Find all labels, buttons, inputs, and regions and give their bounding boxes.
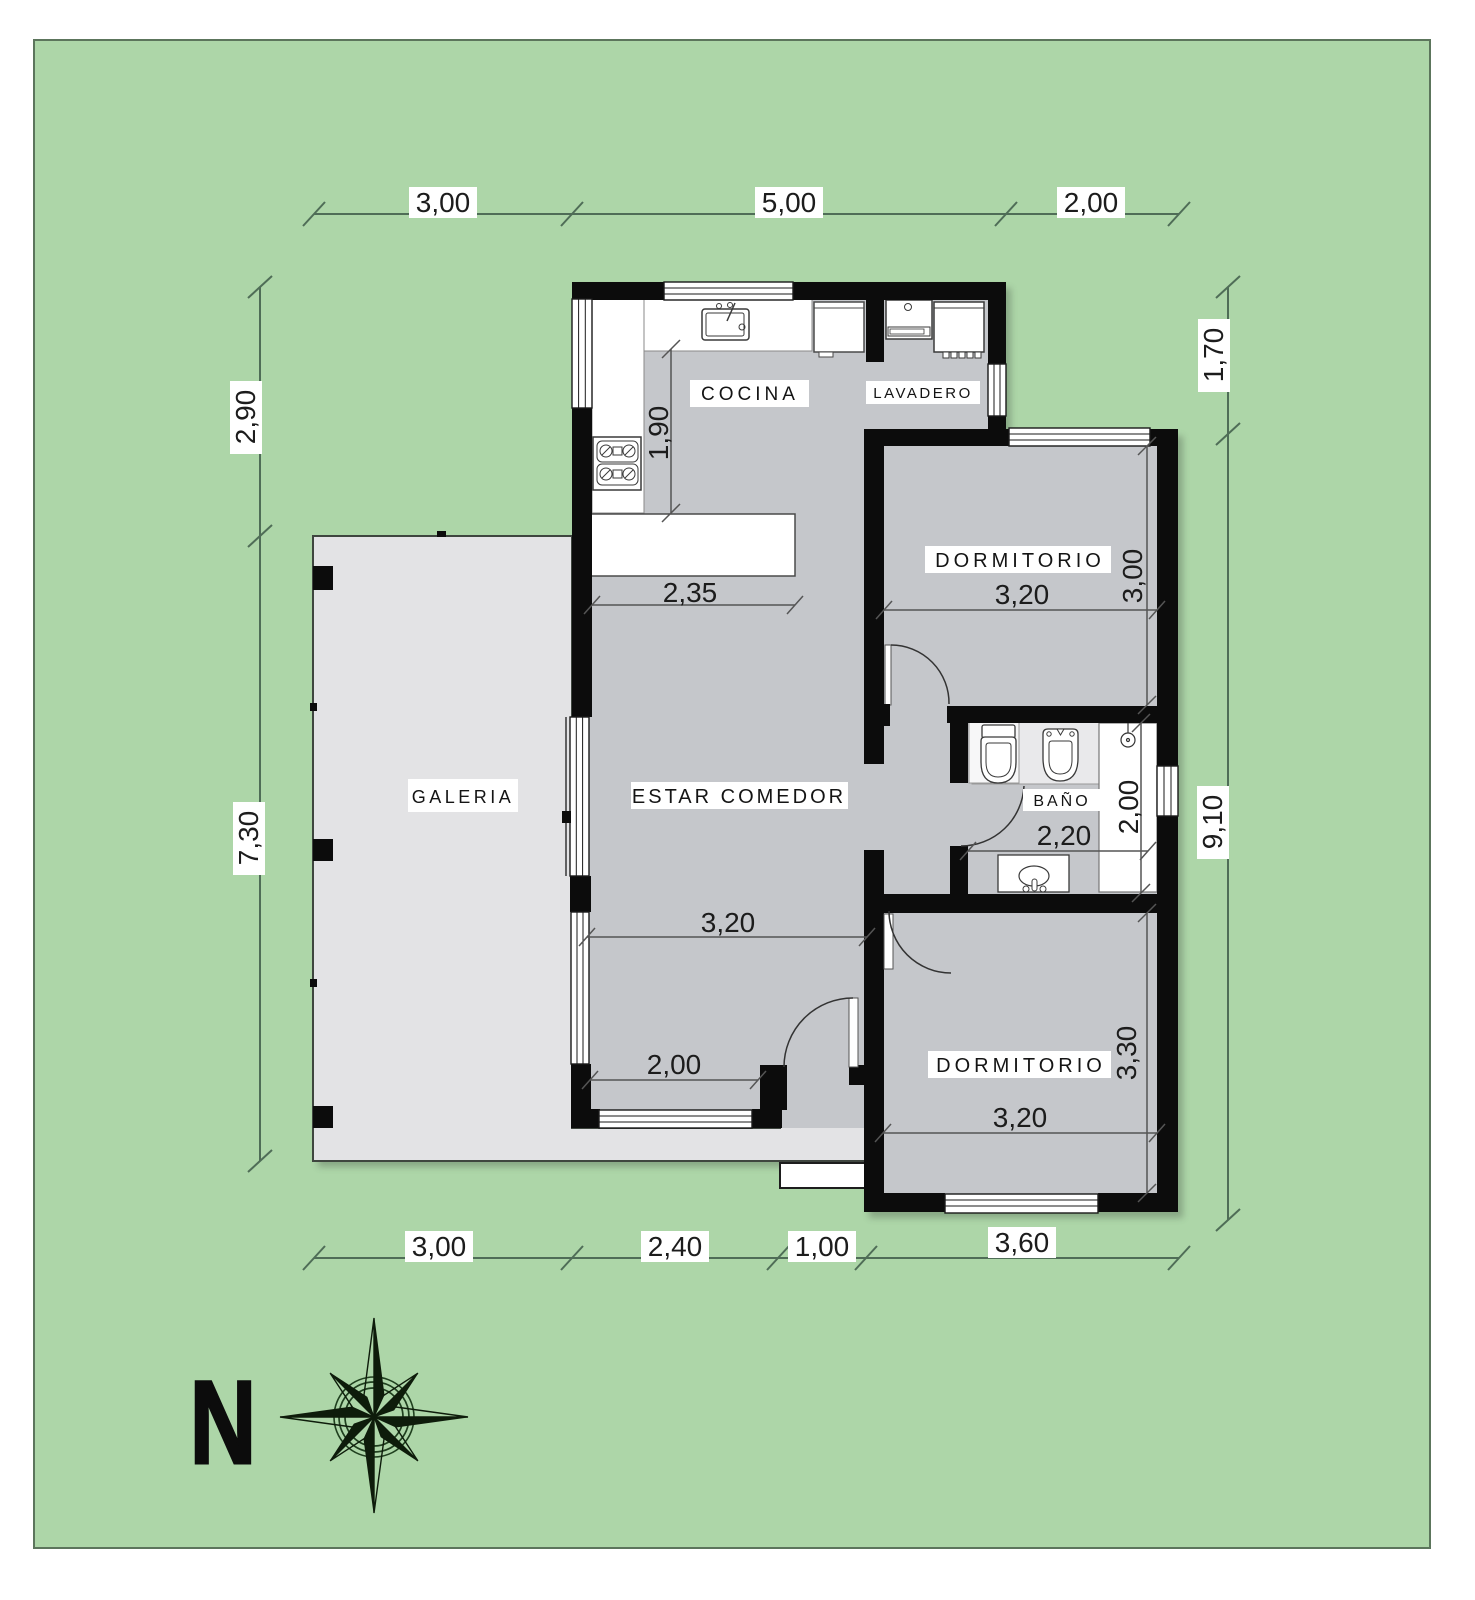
svg-text:3,20: 3,20 [995, 579, 1050, 610]
svg-text:DORMITORIO: DORMITORIO [936, 1055, 1106, 1077]
svg-text:DORMITORIO: DORMITORIO [935, 550, 1105, 572]
svg-text:ESTAR COMEDOR: ESTAR COMEDOR [632, 786, 846, 808]
svg-text:3,30: 3,30 [1111, 1026, 1142, 1081]
svg-text:3,00: 3,00 [412, 1231, 467, 1262]
svg-text:3,20: 3,20 [993, 1102, 1048, 1133]
svg-text:3,60: 3,60 [995, 1227, 1050, 1258]
svg-text:1,70: 1,70 [1198, 328, 1229, 383]
svg-text:2,00: 2,00 [1064, 187, 1119, 218]
svg-text:2,90: 2,90 [230, 390, 261, 445]
svg-text:N: N [190, 1357, 256, 1489]
svg-text:BAÑO: BAÑO [1033, 790, 1090, 810]
svg-text:3,20: 3,20 [701, 907, 756, 938]
svg-text:GALERIA: GALERIA [412, 787, 515, 807]
svg-text:2,00: 2,00 [647, 1049, 702, 1080]
svg-text:7,30: 7,30 [233, 811, 264, 866]
svg-text:3,00: 3,00 [416, 187, 471, 218]
svg-text:2,35: 2,35 [663, 577, 718, 608]
svg-text:2,40: 2,40 [648, 1231, 703, 1262]
svg-text:3,00: 3,00 [1117, 549, 1148, 604]
svg-text:9,10: 9,10 [1197, 795, 1228, 850]
svg-text:1,90: 1,90 [643, 406, 674, 461]
svg-text:1,00: 1,00 [795, 1231, 850, 1262]
svg-text:COCINA: COCINA [701, 384, 799, 405]
svg-text:2,00: 2,00 [1113, 780, 1144, 835]
svg-text:2,20: 2,20 [1037, 820, 1092, 851]
svg-text:LAVADERO: LAVADERO [873, 385, 972, 402]
svg-text:5,00: 5,00 [762, 187, 817, 218]
